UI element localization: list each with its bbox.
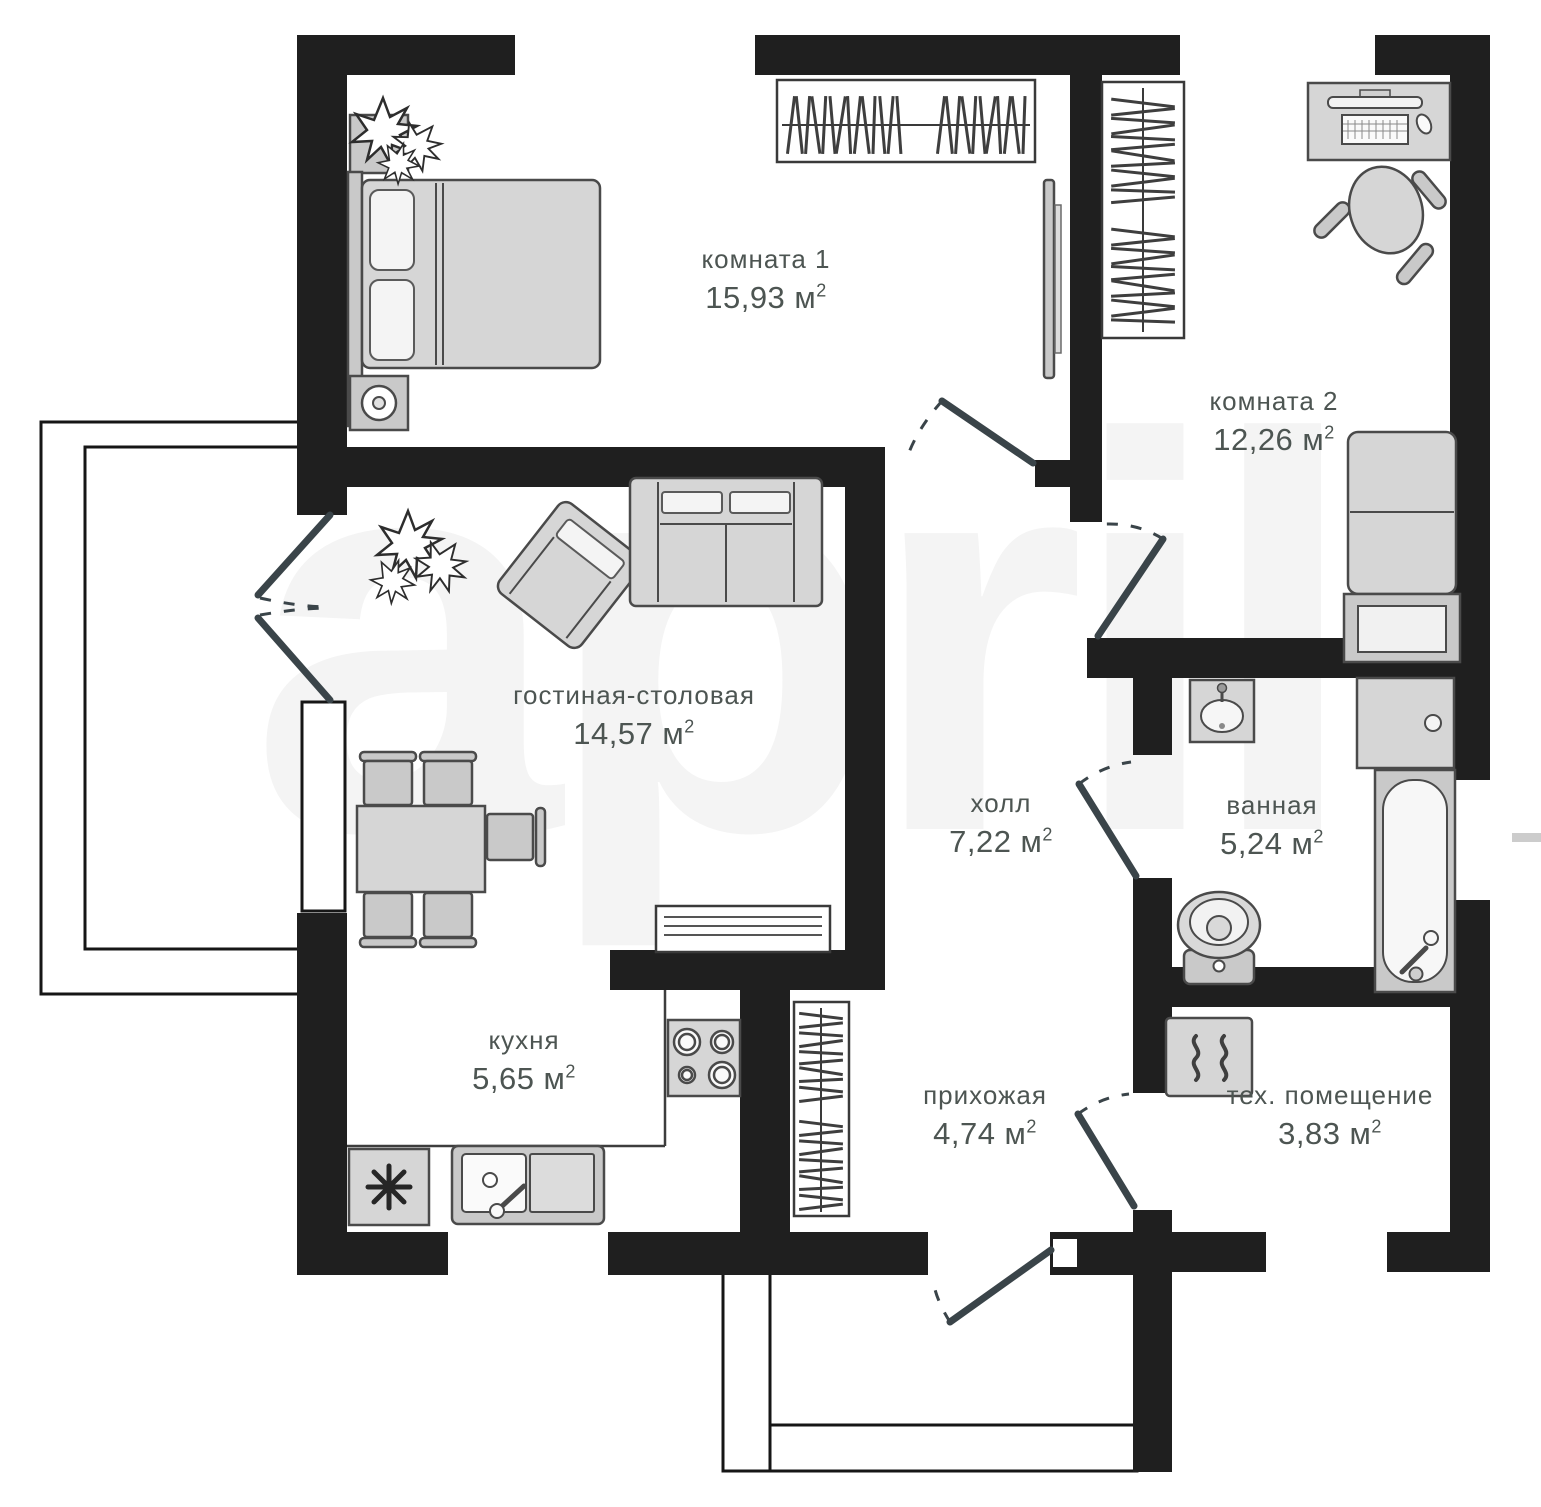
bathroom-door bbox=[1079, 762, 1136, 876]
fridge-icon bbox=[349, 1149, 429, 1225]
dining-table bbox=[357, 806, 485, 892]
chair bbox=[360, 938, 416, 947]
desk bbox=[1308, 83, 1450, 160]
washing-machine-icon bbox=[1357, 678, 1454, 768]
room-name: тех. помещение bbox=[1205, 1080, 1455, 1111]
room-label-tech: тех. помещение 3,83 м2 bbox=[1205, 1080, 1455, 1152]
terrace-french-door bbox=[258, 515, 330, 700]
floor-plan-drawing bbox=[0, 0, 1541, 1507]
window-room1 bbox=[515, 33, 755, 77]
kitchen-sink-icon bbox=[452, 1146, 604, 1224]
room-name: комната 2 bbox=[1209, 386, 1338, 417]
chair bbox=[420, 752, 476, 761]
sink-icon bbox=[1190, 680, 1254, 742]
bedroom2-furniture bbox=[1102, 82, 1460, 662]
room-label-bath: ванная 5,24 м2 bbox=[1220, 790, 1324, 862]
chair bbox=[536, 808, 545, 866]
room-area: 5,65 м2 bbox=[472, 1061, 576, 1097]
chair bbox=[360, 752, 416, 761]
window-tech bbox=[1266, 1230, 1387, 1274]
room-area: 7,22 м2 bbox=[949, 824, 1053, 860]
pillow bbox=[370, 190, 414, 270]
window-living bbox=[302, 702, 345, 911]
pillow bbox=[370, 280, 414, 360]
armchair bbox=[494, 498, 646, 652]
stove-icon bbox=[668, 1020, 740, 1096]
room-area: 4,74 м2 bbox=[923, 1116, 1047, 1152]
wardrobe bbox=[777, 80, 1035, 162]
room-label-room2: комната 2 12,26 м2 bbox=[1209, 386, 1338, 458]
room-area: 14,57 м2 bbox=[513, 716, 755, 752]
office-chair bbox=[1311, 157, 1448, 287]
sideboard bbox=[656, 906, 830, 952]
room-name: кухня bbox=[472, 1025, 576, 1056]
terrace-outline bbox=[41, 422, 310, 994]
room-label-entry: прихожая 4,74 м2 bbox=[923, 1080, 1047, 1152]
room-name: комната 1 bbox=[701, 244, 830, 275]
room-name: прихожая bbox=[923, 1080, 1047, 1111]
room-area: 15,93 м2 bbox=[701, 280, 830, 316]
room1-door bbox=[908, 401, 1033, 463]
wardrobe bbox=[794, 1002, 849, 1216]
window-room2 bbox=[1180, 33, 1375, 77]
entry-furniture bbox=[794, 1002, 849, 1216]
plant-icon bbox=[363, 511, 477, 611]
chair bbox=[420, 938, 476, 947]
room-label-hall: холл 7,22 м2 bbox=[949, 788, 1053, 860]
room-label-room1: комната 1 15,93 м2 bbox=[701, 244, 830, 316]
room-area: 12,26 м2 bbox=[1209, 422, 1338, 458]
dining-set bbox=[357, 752, 545, 947]
monitor-icon bbox=[1328, 97, 1422, 108]
toilet-icon bbox=[1178, 892, 1260, 984]
window-kitchen bbox=[448, 1230, 608, 1277]
door-threshold bbox=[1052, 1238, 1078, 1268]
bathtub-icon bbox=[1375, 770, 1455, 992]
room-area: 3,83 м2 bbox=[1205, 1116, 1455, 1152]
room-area: 5,24 м2 bbox=[1220, 826, 1324, 862]
chair bbox=[487, 814, 533, 860]
bed bbox=[1344, 432, 1460, 662]
radiator-mark bbox=[1512, 833, 1541, 842]
tech-room-door bbox=[1078, 1094, 1134, 1206]
room-name: ванная bbox=[1220, 790, 1324, 821]
sofa bbox=[630, 478, 822, 606]
floor-plan-page: april bbox=[0, 0, 1541, 1507]
room-label-kitchen: кухня 5,65 м2 bbox=[472, 1025, 576, 1097]
room-name: гостиная-столовая bbox=[513, 680, 755, 711]
keyboard-icon bbox=[1342, 115, 1408, 144]
entrance-door bbox=[933, 1250, 1051, 1322]
room2-door bbox=[1098, 524, 1163, 636]
wardrobe bbox=[1102, 82, 1184, 338]
tv-icon bbox=[1044, 180, 1061, 378]
room-label-living: гостиная-столовая 14,57 м2 bbox=[513, 680, 755, 752]
room-name: холл bbox=[949, 788, 1053, 819]
